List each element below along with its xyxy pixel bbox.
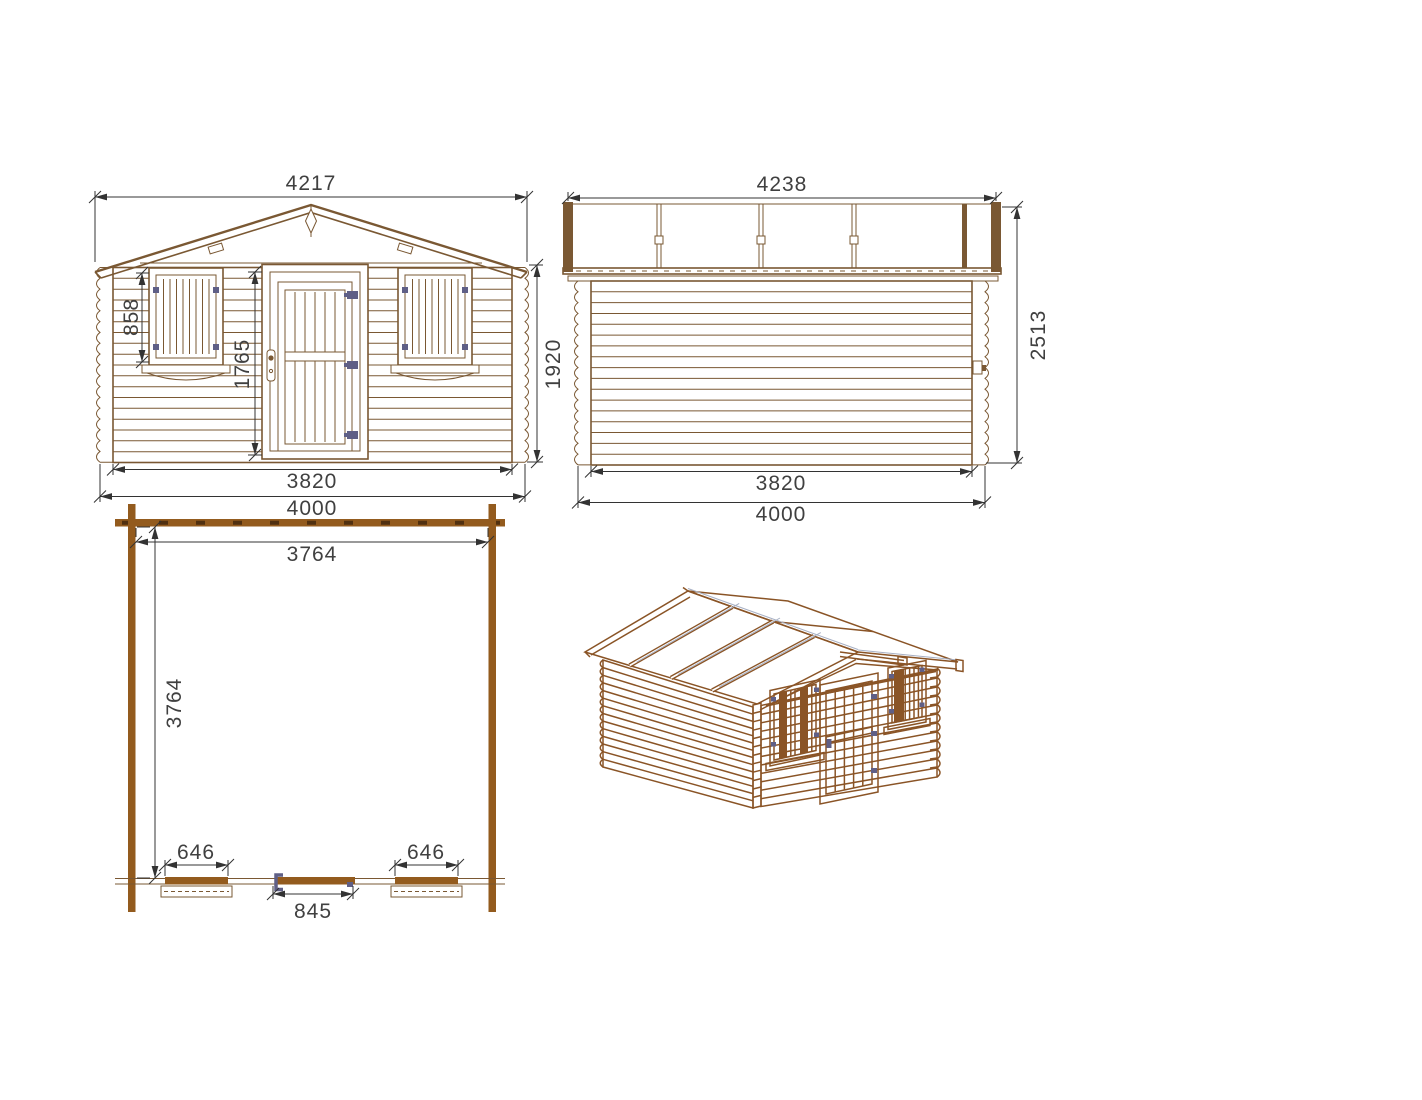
dim-side-base-length: 3820 [591, 472, 972, 496]
iso-roof [585, 588, 963, 711]
shutter-band [779, 691, 787, 759]
dim-label: 3764 [287, 543, 338, 566]
roof-deck-edge [563, 268, 1001, 274]
window-sill [142, 365, 230, 373]
dim-front-door-height: 1765 [231, 272, 255, 455]
plan-wall-right [489, 504, 497, 912]
dim-front-window-height: 858 [120, 273, 143, 362]
corner-ticks-right [930, 677, 937, 768]
front-log-end-column-right [512, 268, 529, 463]
dim-label: 2513 [1027, 310, 1050, 361]
window-frame [149, 268, 223, 365]
dim-label: 4217 [286, 172, 337, 195]
window-opening-bar [165, 877, 228, 885]
floor-plan-view: 3764 3764 646 845 646 [95, 485, 555, 940]
dim-front-roof-width: 4217 [95, 172, 527, 197]
door-handle [827, 739, 832, 748]
plan-door [275, 875, 355, 890]
technical-drawing-sheet: 4217 858 1765 1920 3820 4000 [0, 0, 1422, 1100]
dim-label: 1765 [231, 339, 254, 390]
front-log-end-column-left [97, 268, 114, 463]
window-frame [398, 268, 472, 365]
plan-window-left [161, 877, 232, 897]
roof-fascia-boards [585, 588, 963, 711]
window-opening-bar [395, 877, 458, 885]
window-sill [391, 365, 479, 373]
side-log-end-column-left [575, 281, 592, 465]
dim-label: 4238 [757, 173, 808, 196]
door-mid-rail [285, 352, 345, 361]
window-sill-curve [396, 373, 474, 380]
side-dimensions: 4238 2513 3820 4000 [562, 173, 1050, 526]
iso-window-left [766, 680, 824, 771]
front-window-left [142, 268, 230, 380]
plan-window-right [391, 877, 462, 897]
side-log-lines [591, 292, 972, 454]
open-sash-band [894, 669, 904, 723]
plan-wall-left [128, 504, 136, 912]
door-latch-mark [347, 882, 353, 887]
door-mid-rail [826, 727, 872, 743]
dim-side-roof-length: 4238 [568, 173, 996, 198]
side-elevation-view: 4238 2513 3820 4000 [540, 160, 1060, 535]
tick-marks [562, 192, 1023, 509]
roof-battens [630, 607, 873, 691]
roof-fascia-right [991, 202, 1001, 272]
dim-label: 4000 [756, 503, 807, 526]
left-wall-log-lines [603, 668, 753, 801]
dim-side-overall-length: 4000 [578, 503, 985, 527]
front-window-right [391, 268, 479, 380]
shutter-band [800, 687, 808, 755]
side-wall [575, 281, 989, 465]
dim-plan-inner-width: 3764 [136, 542, 488, 566]
window-sill-curve [147, 373, 225, 380]
plan-dimensions: 3764 3764 646 845 646 [130, 521, 494, 923]
extension-lines [568, 192, 1022, 508]
roof-clamp-left [208, 243, 223, 254]
corner-ticks-left [753, 711, 761, 797]
dim-label: 646 [407, 841, 445, 864]
roof-clamp-right [397, 243, 412, 254]
rafter-notches [655, 236, 858, 244]
dim-label: 3820 [756, 472, 807, 495]
dim-label: 845 [294, 900, 332, 923]
dim-label: 646 [177, 841, 215, 864]
side-wall-face [591, 281, 972, 465]
side-roof [563, 202, 1001, 281]
dim-plan-door-width: 845 [273, 894, 353, 923]
dim-label: 3764 [163, 678, 186, 729]
dim-side-total-height: 2513 [1017, 207, 1050, 463]
side-hinge-detail [973, 361, 986, 374]
door-handle [267, 350, 275, 381]
dim-plan-window-right: 646 [395, 841, 458, 865]
roof-batten [962, 204, 967, 268]
roof-finial [306, 205, 317, 237]
dim-label: 858 [120, 298, 143, 336]
dim-plan-window-left: 646 [165, 841, 228, 865]
left-wall-back-log-ends [600, 660, 603, 767]
door-leaf-bar [275, 877, 355, 885]
roof-fascia-left [563, 202, 573, 272]
dim-plan-inner-depth: 3764 [155, 527, 186, 878]
front-elevation-view: 4217 858 1765 1920 3820 4000 [50, 160, 570, 530]
isometric-view [575, 572, 1005, 842]
front-door [262, 265, 368, 460]
